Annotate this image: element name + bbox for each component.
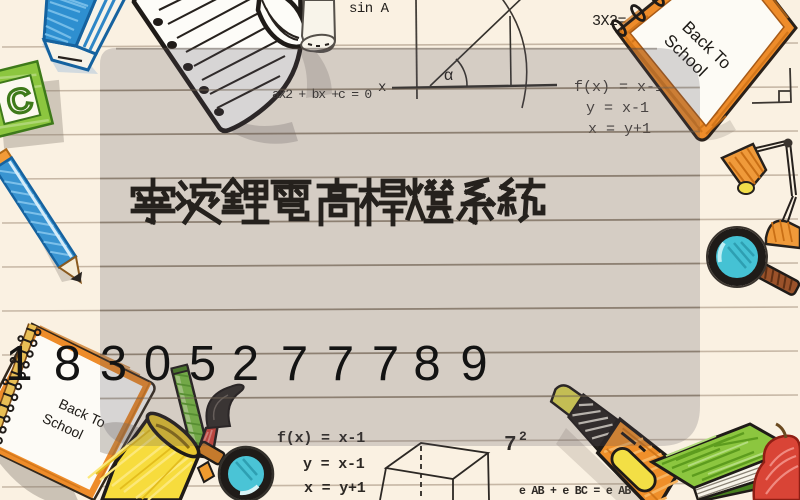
- svg-text:7: 7: [372, 337, 399, 391]
- svg-text:2: 2: [232, 337, 259, 391]
- svg-text:8: 8: [54, 337, 81, 391]
- svg-text:5: 5: [189, 337, 216, 391]
- svg-text:7: 7: [327, 337, 354, 391]
- svg-text:x = y+1: x = y+1: [304, 480, 366, 497]
- svg-text:1: 1: [5, 337, 32, 391]
- svg-text:0: 0: [144, 337, 171, 391]
- svg-text:9: 9: [460, 337, 487, 391]
- svg-text:3: 3: [100, 337, 127, 391]
- svg-text:y = x-1: y = x-1: [303, 456, 365, 473]
- svg-text:7: 7: [281, 337, 308, 391]
- svg-text:sin A: sin A: [349, 1, 390, 17]
- svg-text:8: 8: [413, 337, 440, 391]
